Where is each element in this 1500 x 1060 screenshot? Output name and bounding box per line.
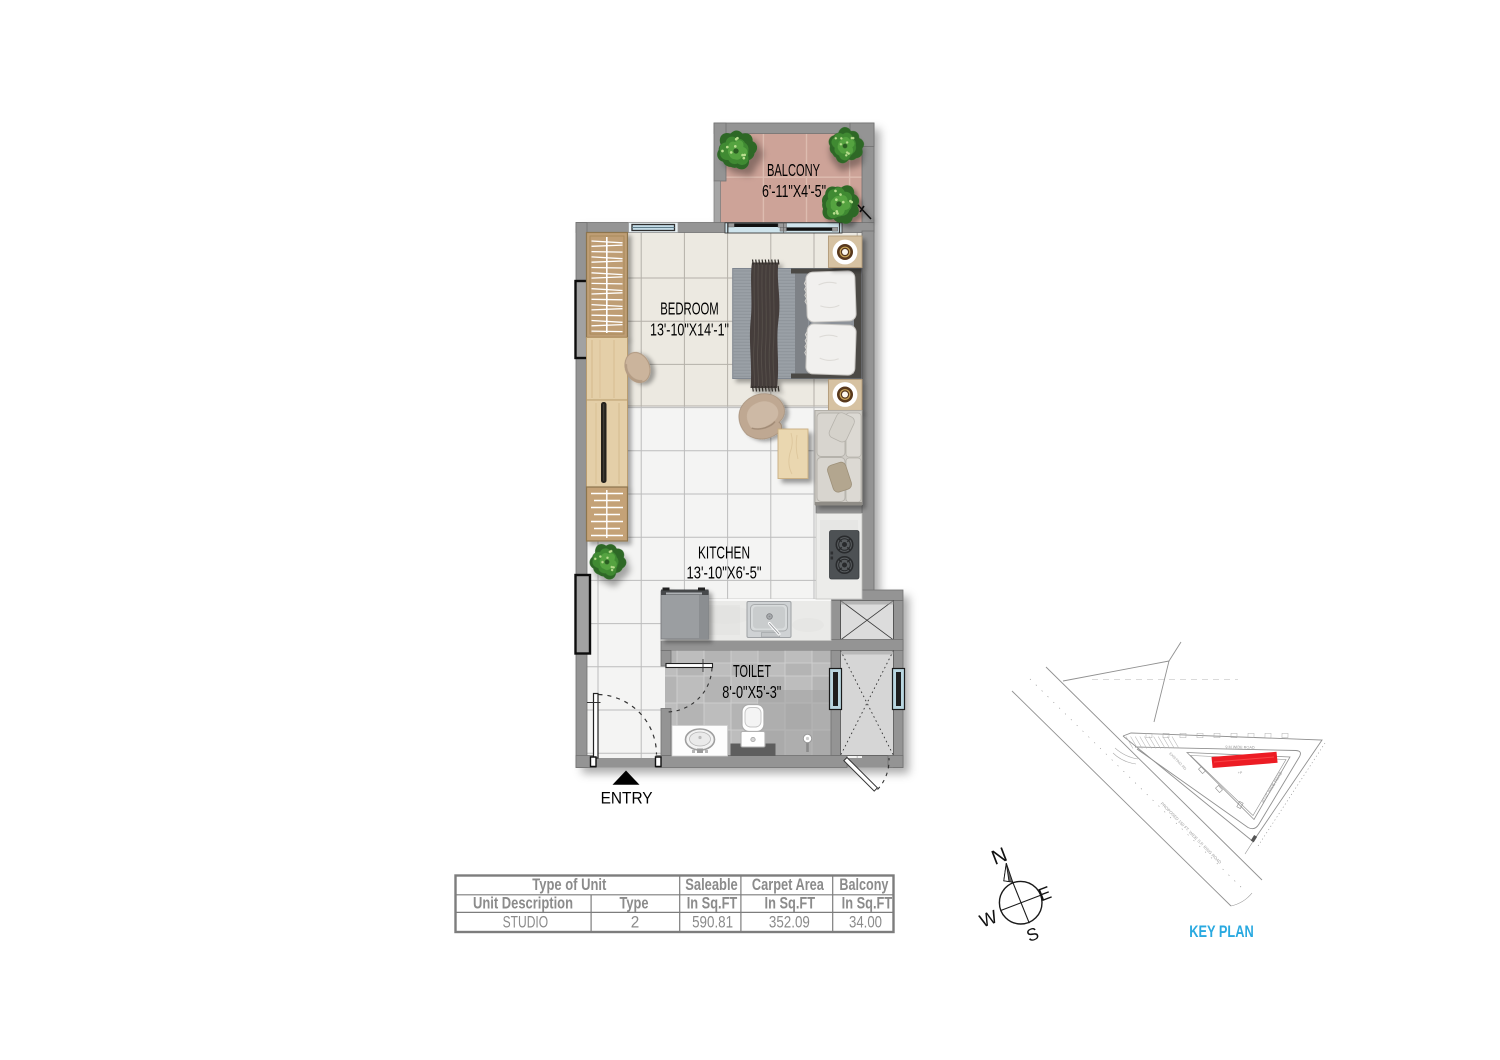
svg-text:40'-0" WIDE ROAD: 40'-0" WIDE ROAD [1260, 771, 1283, 804]
svg-text:In Sq.FT: In Sq.FT [687, 893, 738, 912]
svg-text:Carpet Area: Carpet Area [752, 875, 824, 894]
svg-text:STUDIO: STUDIO [503, 914, 549, 932]
svg-text:KITCHEN: KITCHEN [698, 543, 750, 563]
svg-text:+P: +P [1238, 771, 1243, 775]
svg-text:In Sq.FT: In Sq.FT [842, 893, 893, 912]
svg-text:34.00: 34.00 [849, 914, 882, 932]
svg-text:Unit Description: Unit Description [473, 893, 573, 912]
svg-text:E: E [1036, 882, 1054, 905]
svg-text:13'-10"X6'-5": 13'-10"X6'-5" [687, 563, 762, 583]
svg-text:2: 2 [631, 914, 640, 932]
svg-text:590.81: 590.81 [692, 914, 733, 932]
svg-text:BALCONY: BALCONY [767, 160, 820, 180]
svg-text:ENTRY: ENTRY [601, 789, 653, 808]
svg-text:EXISTING RD: EXISTING RD [1168, 752, 1187, 772]
svg-text:Saleable: Saleable [685, 875, 738, 894]
svg-text:352.09: 352.09 [769, 914, 810, 932]
svg-text:Type: Type [620, 893, 649, 912]
svg-text:9 M WIDE ROAD: 9 M WIDE ROAD [1225, 745, 1255, 750]
svg-text:Balcony: Balcony [839, 875, 888, 894]
svg-text:Type of Unit: Type of Unit [532, 875, 606, 894]
svg-text:13'-10"X14'-1": 13'-10"X14'-1" [650, 320, 729, 340]
svg-text:TOILET: TOILET [733, 661, 771, 681]
svg-text:6'-11"X4'-5": 6'-11"X4'-5" [762, 181, 826, 201]
svg-text:In Sq.FT: In Sq.FT [765, 893, 816, 912]
svg-text:KEY PLAN: KEY PLAN [1189, 923, 1254, 941]
svg-text:BEDROOM: BEDROOM [660, 298, 719, 318]
svg-text:W: W [976, 905, 1000, 931]
svg-text:S: S [1024, 923, 1042, 946]
svg-text:8'-0"X5'-3": 8'-0"X5'-3" [722, 682, 781, 702]
